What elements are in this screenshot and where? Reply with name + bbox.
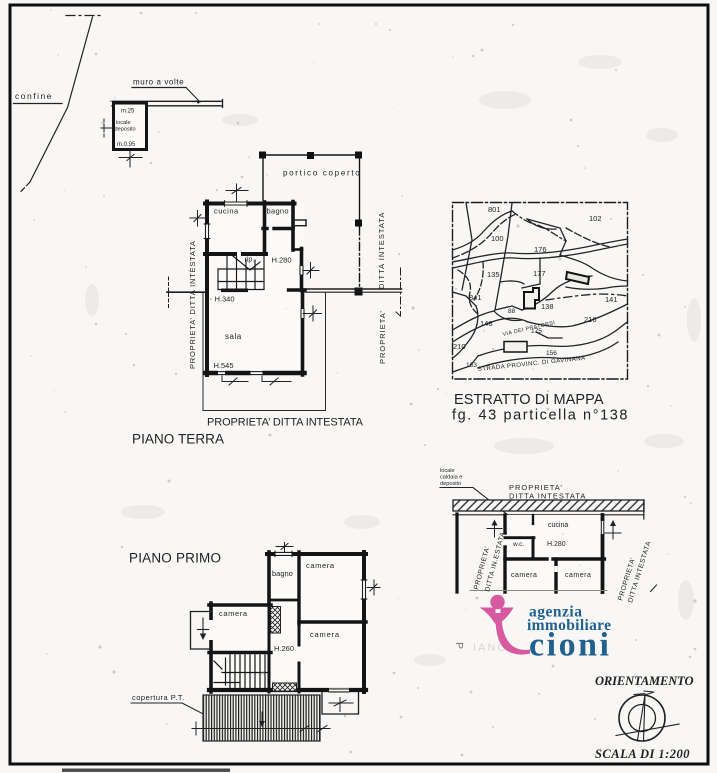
svg-text:216: 216	[584, 315, 597, 324]
svg-text:locale: locale	[116, 120, 131, 126]
svg-text:H.280: H.280	[272, 256, 292, 265]
svg-text:PROPRIETA’ DITTA INTESTATA: PROPRIETA’ DITTA INTESTATA	[188, 240, 197, 369]
svg-text:DITTA INTESTATA: DITTA INTESTATA	[509, 492, 586, 501]
svg-text:portico coperto: portico coperto	[283, 169, 361, 178]
svg-text:135: 135	[487, 270, 500, 279]
svg-text:fg. 43 particella n°138: fg. 43 particella n°138	[452, 408, 628, 424]
svg-text:rip.: rip.	[245, 257, 255, 264]
svg-text:SCALA DI 1:200: SCALA DI 1:200	[595, 747, 690, 761]
svg-text:88: 88	[508, 308, 516, 315]
svg-text:camera: camera	[219, 609, 248, 618]
svg-text:muro a volte: muro a volte	[133, 78, 184, 87]
svg-text:163: 163	[466, 362, 477, 369]
svg-text:841: 841	[469, 293, 482, 302]
svg-text:cucina: cucina	[548, 522, 568, 529]
svg-text:PIANO TERRA: PIANO TERRA	[132, 432, 225, 447]
svg-text:156: 156	[546, 350, 557, 357]
svg-text:210: 210	[453, 342, 466, 351]
svg-text:176: 176	[534, 245, 547, 254]
svg-text:H.280: H.280	[547, 541, 566, 548]
svg-text:PIANO PRIMO: PIANO PRIMO	[129, 551, 222, 566]
svg-text:m.0.95: m.0.95	[117, 142, 136, 148]
svg-text:bagno: bagno	[267, 207, 289, 216]
svg-text:cioni: cioni	[529, 627, 609, 664]
svg-text:H.260: H.260	[274, 644, 294, 653]
svg-text:PROPRIETA’ DITTA INTESTATA: PROPRIETA’ DITTA INTESTATA	[207, 417, 364, 429]
svg-text:w.c.: w.c.	[512, 541, 524, 548]
svg-text:deposito: deposito	[115, 127, 136, 133]
svg-text:H.545: H.545	[214, 361, 234, 370]
svg-text:locale: locale	[440, 468, 455, 474]
svg-text:camera: camera	[310, 630, 340, 639]
svg-text:ESTRATTO DI MAPPA: ESTRATTO DI MAPPA	[454, 392, 605, 408]
svg-text:DITTA INTESTATA: DITTA INTESTATA	[377, 212, 386, 289]
svg-text:PROPRIETA’: PROPRIETA’	[378, 310, 387, 364]
svg-text:177: 177	[533, 269, 546, 278]
svg-text:copertura P.T.: copertura P.T.	[132, 693, 185, 702]
svg-text:camera: camera	[306, 561, 335, 570]
svg-text:camera: camera	[511, 572, 537, 579]
svg-text:141: 141	[605, 295, 618, 304]
svg-text:100: 100	[491, 234, 504, 243]
svg-text:cucina: cucina	[214, 207, 239, 216]
svg-text:sala: sala	[225, 332, 242, 341]
svg-text:801: 801	[488, 205, 501, 214]
svg-text:camera: camera	[565, 572, 591, 579]
svg-text:confine: confine	[15, 91, 53, 101]
svg-text:caldaia e: caldaia e	[440, 475, 462, 481]
svg-text:148: 148	[480, 319, 493, 328]
svg-text:102: 102	[589, 214, 602, 223]
svg-text:deposito: deposito	[440, 481, 461, 487]
svg-text:ORIENTAMENTO: ORIENTAMENTO	[595, 674, 694, 688]
svg-text:138: 138	[541, 302, 554, 311]
svg-text:m.25: m.25	[121, 109, 135, 115]
svg-text:bagno: bagno	[272, 569, 293, 578]
svg-text:P: P	[453, 642, 465, 649]
svg-text:H.340: H.340	[215, 295, 235, 304]
